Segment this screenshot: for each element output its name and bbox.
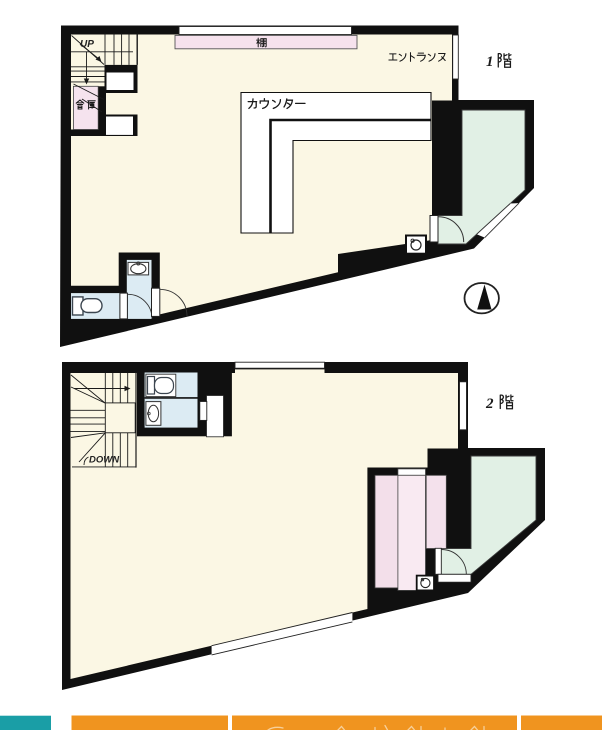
svg-text:DOWN: DOWN [89,455,120,466]
svg-text:1: 1 [486,54,494,70]
svg-text:2: 2 [485,396,494,412]
svg-text:UP: UP [80,39,94,50]
